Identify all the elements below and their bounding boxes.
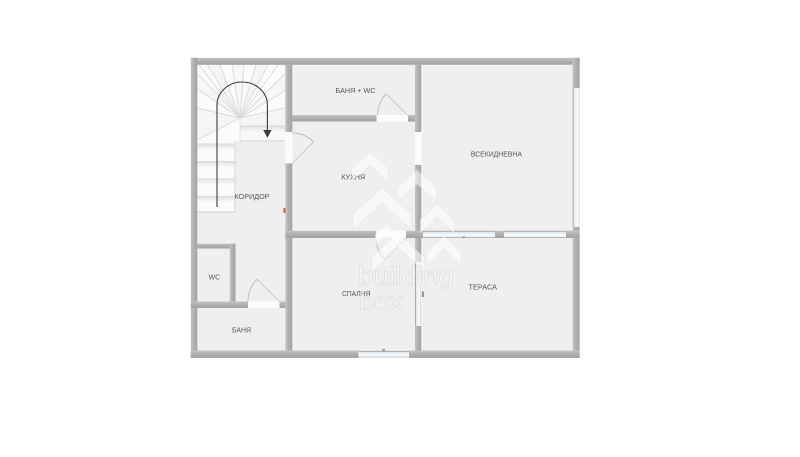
svg-text:WC: WC bbox=[209, 272, 221, 281]
svg-text:ТЕРАСА: ТЕРАСА bbox=[469, 282, 498, 291]
svg-text:КОРИДОР: КОРИДОР bbox=[235, 192, 270, 201]
svg-text:БАНЯ: БАНЯ bbox=[232, 325, 251, 334]
svg-text:ВСЕКИДНЕВНА: ВСЕКИДНЕВНА bbox=[471, 150, 522, 159]
svg-text:БАНЯ + WC: БАНЯ + WC bbox=[336, 86, 377, 95]
svg-text:box: box bbox=[359, 286, 403, 316]
